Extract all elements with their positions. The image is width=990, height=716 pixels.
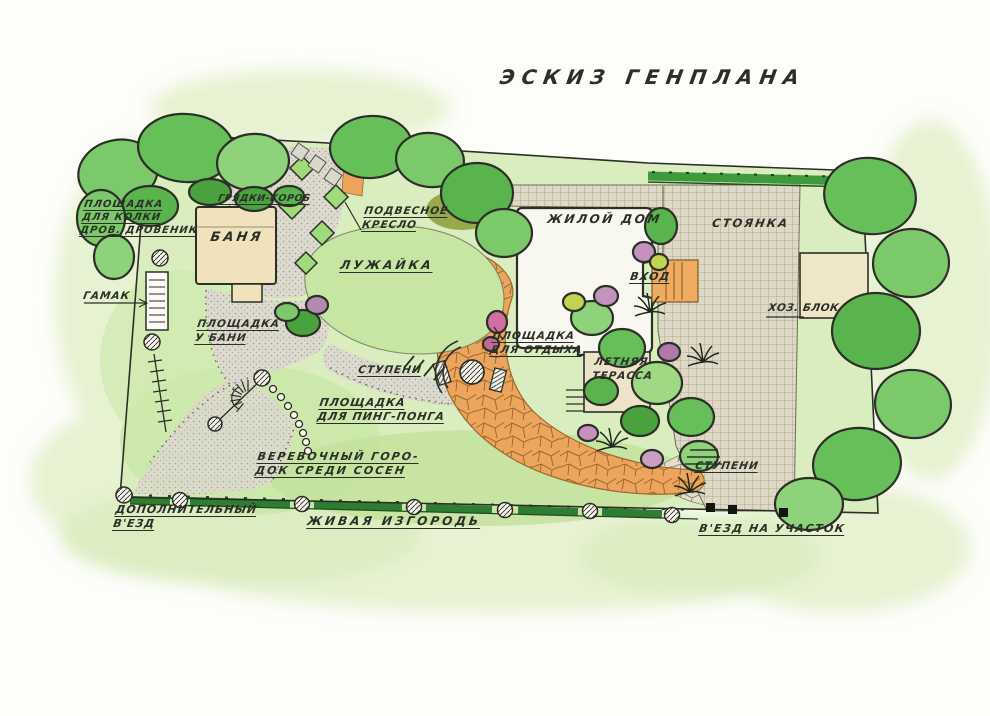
label-parking: СТОЯНКА xyxy=(711,216,790,231)
label-extra-entrance: ДОПОЛНИТЕЛЬНЫЙ В'ЕЗД xyxy=(112,503,258,532)
label-steps-right: СТУПЕНИ xyxy=(694,460,760,474)
label-entrance: ВХОД xyxy=(629,270,671,284)
label-main-entrance: В'ЕЗД НА УЧАСТОК xyxy=(698,522,846,536)
label-hammock: ГАМАК xyxy=(82,290,131,304)
label-ping-pong: ПЛОЩАДКА ДЛЯ ПИНГ-ПОНГА xyxy=(316,396,448,425)
label-garden-beds: ГРЯДКИ-КОРОБ xyxy=(217,193,312,205)
label-summer-terrace: ЛЕТНЯЯ ТЕРАССА xyxy=(591,356,656,383)
label-woodshed-area: ПЛОЩАДКА ДЛЯ КОЛКИ ДРОВ. ДРОВЕНИК xyxy=(79,198,203,237)
label-rest-area: ПЛОЩАДКА ДЛЯ ОТДЫХА xyxy=(489,330,586,357)
page-title: ЭСКИЗ ГЕНПЛАНА xyxy=(498,64,808,90)
label-house: ЖИЛОЙ ДОМ xyxy=(546,212,663,228)
label-steps-center: СТУПЕНИ xyxy=(357,364,423,378)
label-banya: БАНЯ xyxy=(209,230,265,247)
label-hedge: ЖИВАЯ ИЗГОРОДЬ xyxy=(306,514,482,530)
label-banya-ground: ПЛОЩАДКА У БАНИ xyxy=(194,318,281,345)
label-hanging-chair: ПОДВЕСНОЕ КРЕСЛО xyxy=(361,205,449,232)
plan-drawing xyxy=(0,0,990,716)
label-utility-block: ХОЗ. БЛОК xyxy=(767,302,840,316)
genplan-sketch: ЭСКИЗ ГЕНПЛАНА ПЛОЩАДКА ДЛЯ КОЛКИ ДРОВ. … xyxy=(0,0,990,716)
label-rope-park: ВЕРЕВОЧНЫЙ ГОРО- ДОК СРЕДИ СОСЕН xyxy=(254,450,421,479)
label-lawn: ЛУЖАЙКА xyxy=(339,258,435,274)
